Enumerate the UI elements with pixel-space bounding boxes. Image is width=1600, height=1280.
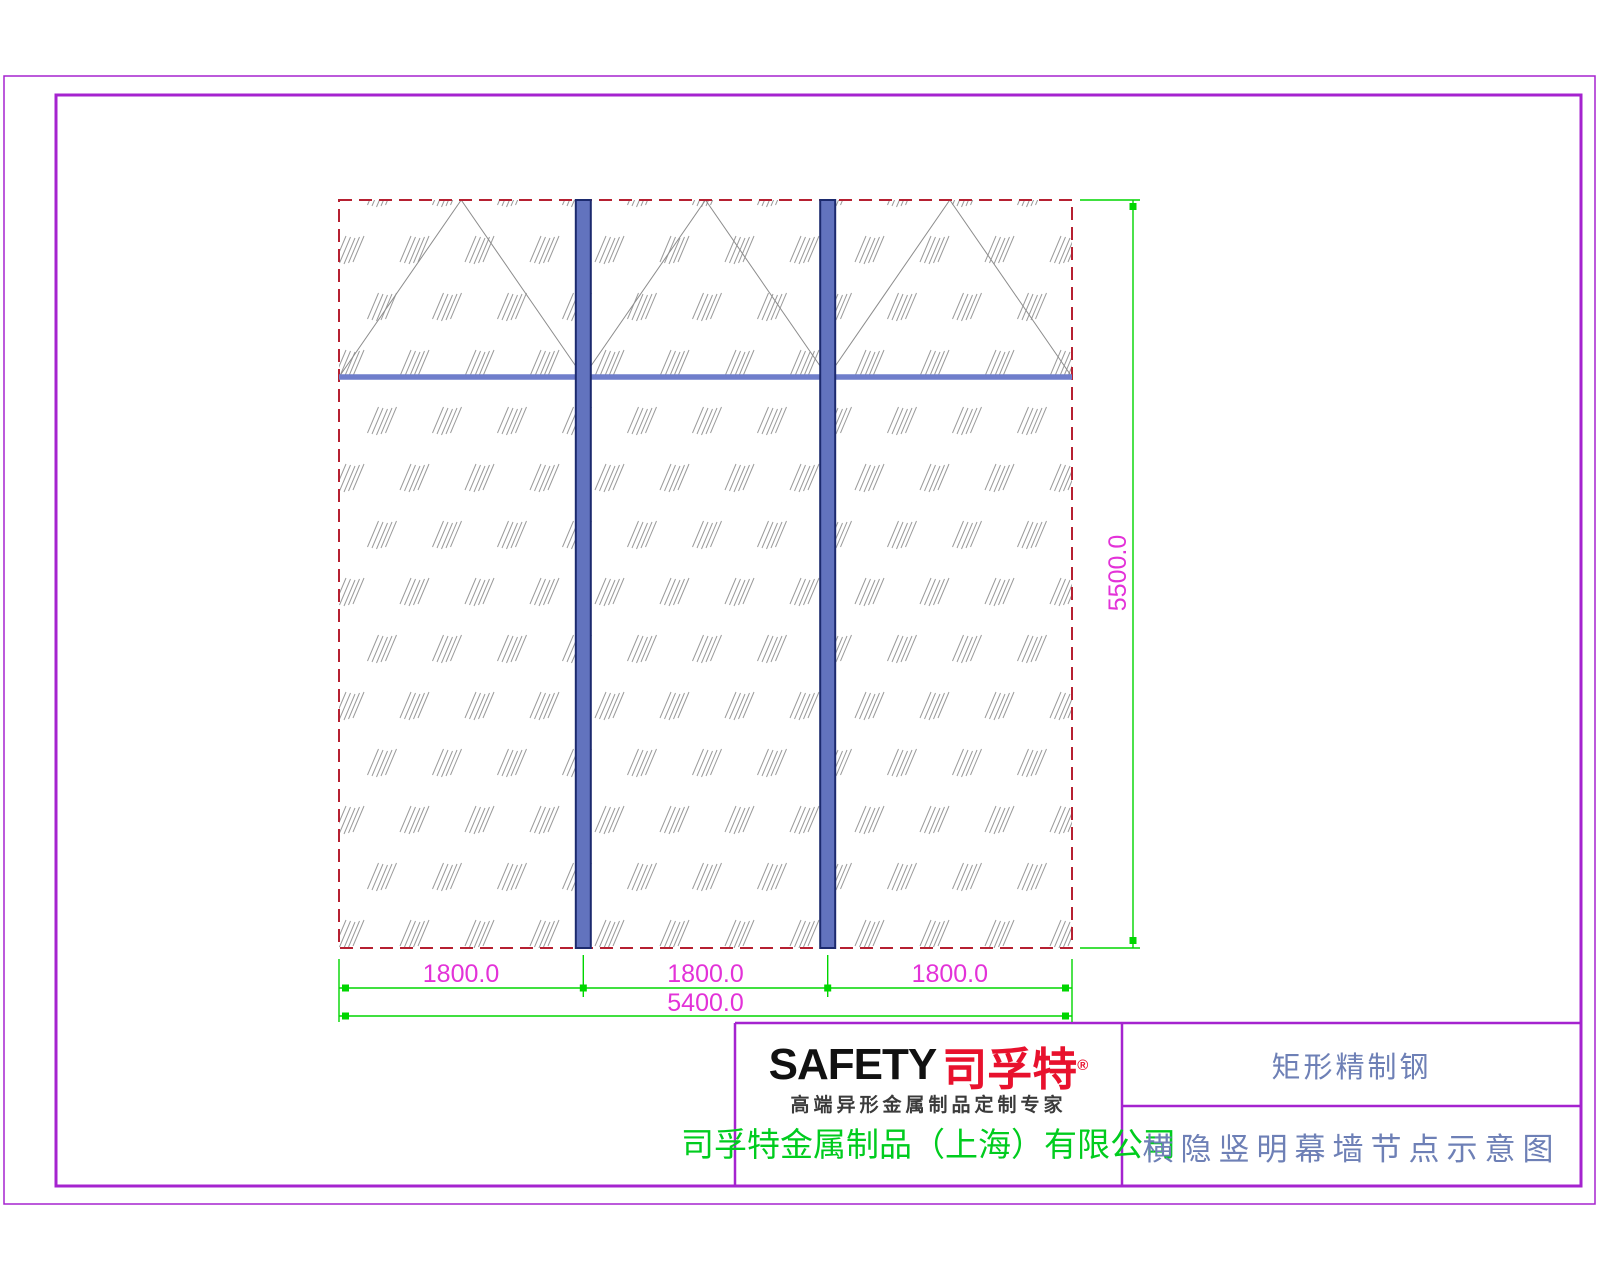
dim-panel-width-3: 1800.0 (912, 960, 988, 988)
mullion-bar-right (820, 200, 835, 948)
dim-total-width: 5400.0 (667, 989, 743, 1017)
product-name-cell: 矩形精制钢 (1122, 1023, 1581, 1106)
registered-trademark-icon: ® (1077, 1057, 1088, 1074)
logo-text-cn: 司孚特 (942, 1033, 1077, 1098)
dim-panel-width-1: 1800.0 (423, 960, 499, 988)
company-name: 司孚特金属制品（上海）有限公司 (735, 1116, 1122, 1168)
mullion-bar-left (576, 200, 591, 948)
drawing-title-cell: 横隐竖明幕墙节点示意图 (1122, 1106, 1581, 1186)
dim-total-height: 5500.0 (1104, 535, 1132, 611)
glass-panel-area (339, 200, 1072, 948)
logo-text-en: SAFETY (769, 1040, 937, 1090)
company-logo: SAFETY 司孚特 ® (735, 1036, 1122, 1094)
cad-drawing-page: 1800.0 1800.0 1800.0 5400.0 5500.0 SAFET… (0, 0, 1600, 1280)
company-tagline: 高端异形金属制品定制专家 (735, 1091, 1122, 1115)
dim-panel-width-2: 1800.0 (667, 960, 743, 988)
